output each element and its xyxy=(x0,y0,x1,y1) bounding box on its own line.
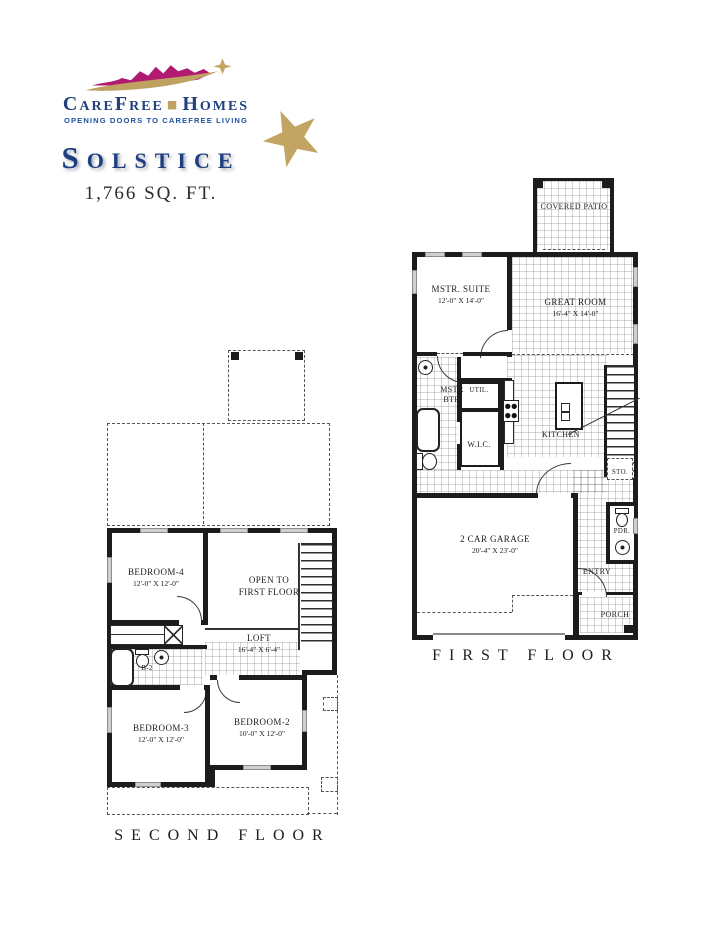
dashed-outline-patio xyxy=(228,350,305,421)
door-arc xyxy=(177,596,202,621)
window xyxy=(412,270,417,294)
door-header xyxy=(437,353,463,354)
toilet-icon xyxy=(422,453,437,470)
room-label-wic: W.I.C. xyxy=(458,440,500,450)
loft-rail xyxy=(205,628,298,630)
patio-post xyxy=(295,352,303,360)
dashed-outline-roof xyxy=(107,423,330,526)
sink-icon xyxy=(418,360,433,375)
garage-door-line xyxy=(433,633,565,635)
room-label-great-room: GREAT ROOM 16'-4" X 14'-0" xyxy=(528,297,623,319)
wall xyxy=(203,528,208,625)
brand-tagline: OPENING DOORS TO CAREFREE LIVING xyxy=(42,116,270,125)
room-label-garage: 2 CAR GARAGE 20'-4" X 23'-0" xyxy=(435,534,555,556)
wall xyxy=(575,592,579,635)
wall-notch xyxy=(624,625,634,633)
room-label-b2-bath: B-2 xyxy=(131,665,163,674)
flyer-page: CareFree■Homes OPENING DOORS TO CAREFREE… xyxy=(0,0,720,936)
toilet-icon xyxy=(616,513,628,527)
room-label-kitchen: KITCHEN xyxy=(535,430,587,440)
window xyxy=(462,252,482,257)
window xyxy=(135,782,161,787)
sink-bowl xyxy=(561,412,570,421)
brand-name: CareFree■Homes xyxy=(42,93,270,116)
brand-word1: CareFree xyxy=(63,93,164,115)
second-floor-caption: SECOND FLOOR xyxy=(105,827,340,845)
driveway-step-line xyxy=(512,595,573,596)
room-label-mstr-suite: MSTR. SUITE 12'-0" X 14'-0" xyxy=(418,284,504,306)
tiled-floor xyxy=(537,181,610,250)
brand-separator-icon: ■ xyxy=(164,98,182,111)
second-floor-plan: B-2 BEDROOM-4 12'-0" X 12'-0" xyxy=(105,345,340,850)
shelf-icon xyxy=(164,625,183,645)
door-arc xyxy=(217,680,240,703)
door-arc xyxy=(184,690,207,713)
sink-bowl xyxy=(561,403,570,412)
room-label-bedroom4: BEDROOM-4 12'-0" X 12'-0" xyxy=(113,567,199,589)
first-floor-caption: FIRST FLOOR xyxy=(410,647,642,665)
dashed-outline-roof xyxy=(107,787,309,815)
window xyxy=(220,528,248,533)
mountain-logo-icon xyxy=(86,58,236,98)
room-label-entry: ENTRY xyxy=(574,567,620,577)
window xyxy=(425,252,445,257)
room-label-covered-patio: COVERED PATIO xyxy=(534,202,614,212)
walk-in-closet xyxy=(460,410,500,467)
wall xyxy=(610,178,614,252)
room-label-sto: STO. xyxy=(606,469,634,478)
first-floor-plan: COVERED PATIO UTIL. W.I.C. xyxy=(410,172,642,677)
wall xyxy=(533,178,537,252)
window xyxy=(243,765,271,770)
driveway-step-line xyxy=(417,612,512,613)
patio-post xyxy=(535,180,543,188)
patio-post xyxy=(231,352,239,360)
dashed-notch xyxy=(321,777,338,792)
stove-icon xyxy=(503,400,519,422)
sink-icon xyxy=(154,650,169,665)
model-title: Solstice xyxy=(35,140,267,176)
room-label-mstr-bth: MSTR BTH xyxy=(432,385,472,406)
driveway-step-line xyxy=(512,595,513,612)
dashed-outline-roof xyxy=(307,813,337,814)
brand-word2: Homes xyxy=(182,93,249,115)
dashed-notch xyxy=(323,697,338,711)
bathtub-icon xyxy=(416,408,440,452)
window xyxy=(633,324,638,344)
patio-post xyxy=(602,180,610,188)
dashed-outline-roof xyxy=(337,675,338,815)
window xyxy=(633,267,638,287)
sliding-door xyxy=(543,249,605,250)
window xyxy=(280,528,308,533)
wall xyxy=(302,670,337,675)
model-sqft: 1,766 SQ. FT. xyxy=(40,183,262,205)
garage-door-opening xyxy=(433,630,565,640)
dashed-divider xyxy=(203,423,204,524)
room-label-open-to-first-floor: OPEN TO FIRST FLOOR xyxy=(230,575,308,598)
wall xyxy=(332,528,337,675)
room-label-porch: PORCH xyxy=(592,610,638,620)
window xyxy=(633,518,638,534)
sink-icon xyxy=(615,540,630,555)
room-label-loft: LOFT 16'-4" X 6'-4" xyxy=(221,633,297,655)
window xyxy=(107,707,112,733)
room-label-bedroom3: BEDROOM-3 12'-0" X 12'-0" xyxy=(115,723,207,745)
room-label-bedroom2: BEDROOM-2 10'-0" X 12'-0" xyxy=(217,717,307,739)
window xyxy=(107,557,112,583)
window xyxy=(140,528,168,533)
